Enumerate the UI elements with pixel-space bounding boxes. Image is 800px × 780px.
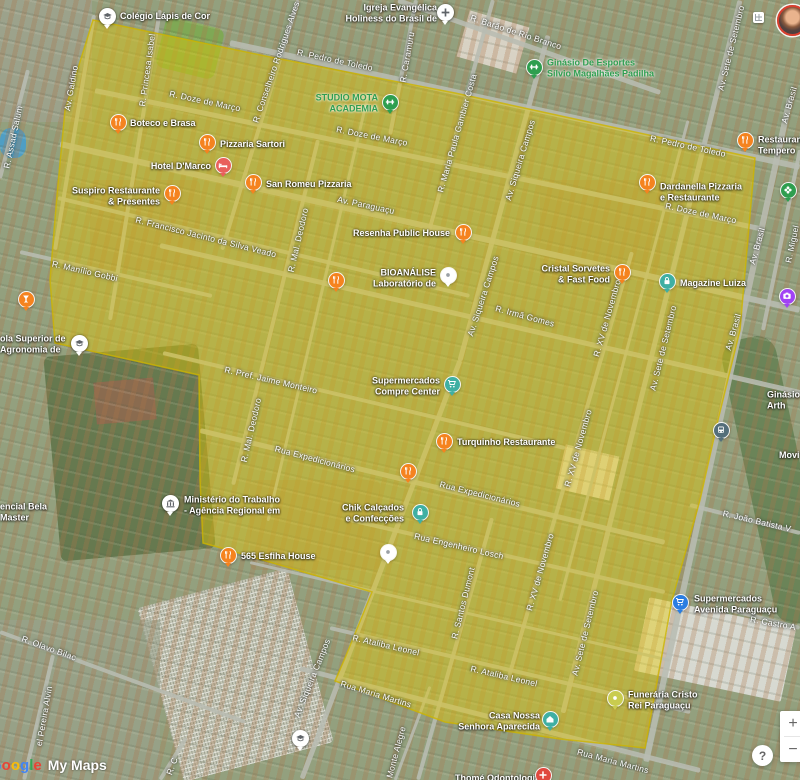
cart-icon (675, 597, 685, 607)
help-button[interactable]: ? (752, 745, 773, 766)
igreja-evangelica-marker[interactable] (437, 4, 454, 21)
fork-icon (617, 267, 627, 277)
escola-superior-agronomia-marker[interactable] (71, 335, 88, 352)
lock-icon (415, 507, 425, 517)
dot-icon (443, 270, 453, 280)
zoom-control[interactable]: + − (780, 711, 800, 762)
fork-icon (223, 550, 233, 560)
fork-icon (331, 275, 341, 285)
resenha-public-house-marker[interactable] (456, 225, 471, 240)
white-dot-2-marker[interactable] (381, 545, 396, 560)
cristal-sorvetes-marker[interactable] (615, 265, 630, 280)
dot-icon (610, 693, 620, 703)
account-avatar[interactable] (777, 5, 800, 36)
fork-icon (458, 227, 468, 237)
supermercados-avenida-paraguacu-marker[interactable] (673, 595, 688, 610)
dumbbell-icon (385, 97, 395, 107)
ginasio-de-esportes-marker[interactable] (527, 60, 542, 75)
fork-icon (113, 117, 123, 127)
dumbbell-icon (529, 62, 539, 72)
thome-odontologia-marker[interactable] (536, 768, 551, 780)
lock-icon (662, 276, 672, 286)
pizzaria-sartori-marker[interactable] (200, 135, 215, 150)
bar-icon (21, 294, 31, 304)
casa-nossa-senhora-aparecida-marker[interactable] (543, 712, 558, 727)
flower-right-edge-marker[interactable] (781, 183, 796, 198)
restaurant-unlabeled-1-marker[interactable] (329, 273, 344, 288)
restaurante-tempero-marker[interactable] (738, 133, 753, 148)
san-romeu-pizzaria-marker[interactable] (246, 175, 261, 190)
bioanalise-laboratorio-marker[interactable] (441, 268, 456, 283)
restaurant-unlabeled-2-marker[interactable] (401, 464, 416, 479)
cross-icon (440, 7, 451, 18)
cap-icon (74, 338, 85, 349)
turquinho-restaurante-marker[interactable] (437, 434, 452, 449)
boteco-e-brasa-marker[interactable] (111, 115, 126, 130)
flower-icon (783, 185, 793, 195)
hotel-d-marco-marker[interactable] (216, 158, 231, 173)
fork-icon (202, 137, 212, 147)
colegio-lapis-de-cor-marker[interactable] (99, 8, 116, 25)
chik-calcados-marker[interactable] (413, 505, 428, 520)
suspiro-restaurante-marker[interactable] (165, 186, 180, 201)
cap-icon (295, 733, 306, 744)
supermercados-compre-center-marker[interactable] (445, 377, 460, 392)
bus-icon (716, 425, 726, 435)
ministerio-do-trabalho-marker[interactable] (162, 495, 179, 512)
studio-mota-academia-marker[interactable] (383, 95, 398, 110)
transit-av-brasil-marker[interactable] (714, 423, 729, 438)
dardanella-pizzaria-marker[interactable] (640, 175, 655, 190)
zoom-out-button[interactable]: − (780, 737, 800, 762)
fork-icon (248, 177, 258, 187)
markers-layer (0, 0, 800, 780)
funeraria-cristo-rei-marker[interactable] (608, 691, 623, 706)
map-canvas[interactable]: R. Assad SalumAv. GaldinoR. Princesa Isa… (0, 0, 800, 780)
fork-icon (167, 188, 177, 198)
bed-icon (218, 160, 228, 170)
camera-right-edge-marker[interactable] (780, 289, 795, 304)
cart-icon (447, 379, 457, 389)
fork-icon (403, 466, 413, 476)
school-unlabeled-marker[interactable] (292, 730, 309, 747)
fork-icon (642, 177, 652, 187)
cross-icon (538, 770, 548, 780)
zoom-in-button[interactable]: + (780, 711, 800, 736)
magazine-luiza-marker[interactable] (660, 274, 675, 289)
dot-icon (383, 547, 393, 557)
esfiha-house-565-marker[interactable] (221, 548, 236, 563)
house-icon (545, 714, 555, 724)
bar-left-edge-marker[interactable] (19, 292, 34, 307)
cap-icon (102, 11, 113, 22)
gov-icon (165, 498, 176, 509)
camera-icon (782, 291, 792, 301)
fork-icon (740, 135, 750, 145)
fork-icon (439, 436, 449, 446)
